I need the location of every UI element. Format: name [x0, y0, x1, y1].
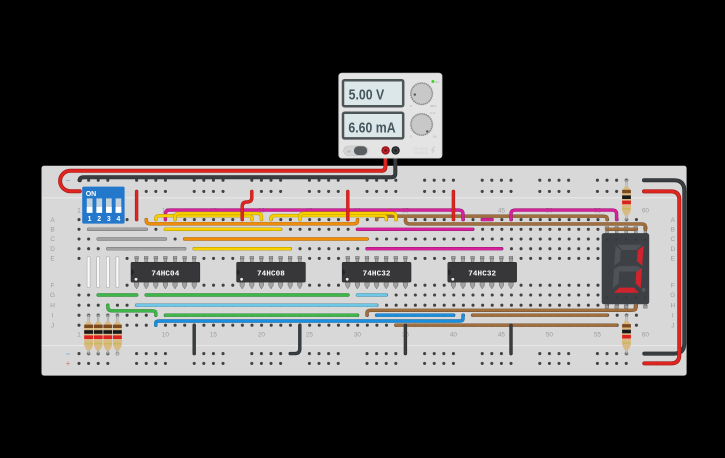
svg-text:D: D	[50, 246, 55, 253]
svg-text:45: 45	[498, 331, 506, 338]
svg-text:1: 1	[88, 216, 92, 223]
svg-text:55: 55	[594, 331, 602, 338]
svg-text:DC: DC	[435, 80, 439, 84]
svg-text:5.00 V: 5.00 V	[349, 85, 385, 103]
svg-text:C: C	[50, 236, 55, 243]
svg-text:A: A	[50, 217, 55, 224]
svg-text:C: C	[670, 236, 675, 243]
svg-text:60: 60	[642, 207, 650, 214]
svg-text:H: H	[670, 302, 675, 309]
svg-text:SOURCE: SOURCE	[413, 151, 428, 155]
svg-text:on: on	[347, 150, 351, 154]
svg-text:6.60 mA: 6.60 mA	[348, 118, 395, 136]
svg-text:J: J	[51, 322, 54, 329]
svg-text:20: 20	[258, 331, 266, 338]
svg-text:G: G	[50, 292, 55, 299]
svg-text:F: F	[671, 282, 675, 289]
svg-text:G: G	[670, 292, 675, 299]
svg-text:1: 1	[77, 207, 81, 214]
svg-text:74HC04: 74HC04	[151, 270, 179, 278]
svg-text:1: 1	[77, 331, 81, 338]
svg-text:20 V: 20 V	[431, 104, 437, 108]
svg-text:74HC08: 74HC08	[257, 270, 285, 278]
svg-text:4: 4	[116, 216, 120, 223]
svg-text:−: −	[66, 176, 71, 185]
svg-text:60: 60	[642, 331, 650, 338]
svg-text:I: I	[52, 312, 54, 319]
svg-text:15: 15	[210, 331, 218, 338]
svg-text:A: A	[671, 217, 676, 224]
svg-text:E: E	[671, 256, 675, 263]
svg-text:40: 40	[450, 331, 458, 338]
svg-text:1 A: 1 A	[433, 135, 437, 139]
svg-text:H: H	[50, 302, 55, 309]
svg-text:F: F	[51, 282, 55, 289]
svg-text:E: E	[50, 256, 54, 263]
svg-text:74HC32: 74HC32	[468, 270, 496, 278]
svg-text:50: 50	[546, 331, 554, 338]
svg-text:+: +	[66, 359, 71, 368]
svg-text:B: B	[50, 227, 54, 234]
svg-text:74HC32: 74HC32	[363, 270, 391, 278]
svg-text:25: 25	[306, 331, 314, 338]
svg-text:J: J	[671, 322, 674, 329]
svg-text:3: 3	[107, 216, 111, 223]
svg-text:I: I	[672, 312, 674, 319]
svg-text:B: B	[671, 227, 675, 234]
svg-text:10: 10	[162, 331, 170, 338]
svg-text:D: D	[670, 246, 675, 253]
svg-text:30: 30	[354, 331, 362, 338]
svg-text:45: 45	[498, 207, 506, 214]
svg-text:◎ A: ◎ A	[430, 111, 435, 115]
svg-text:ON: ON	[86, 191, 97, 198]
svg-text:2: 2	[97, 216, 101, 223]
svg-text:−: −	[66, 349, 71, 358]
